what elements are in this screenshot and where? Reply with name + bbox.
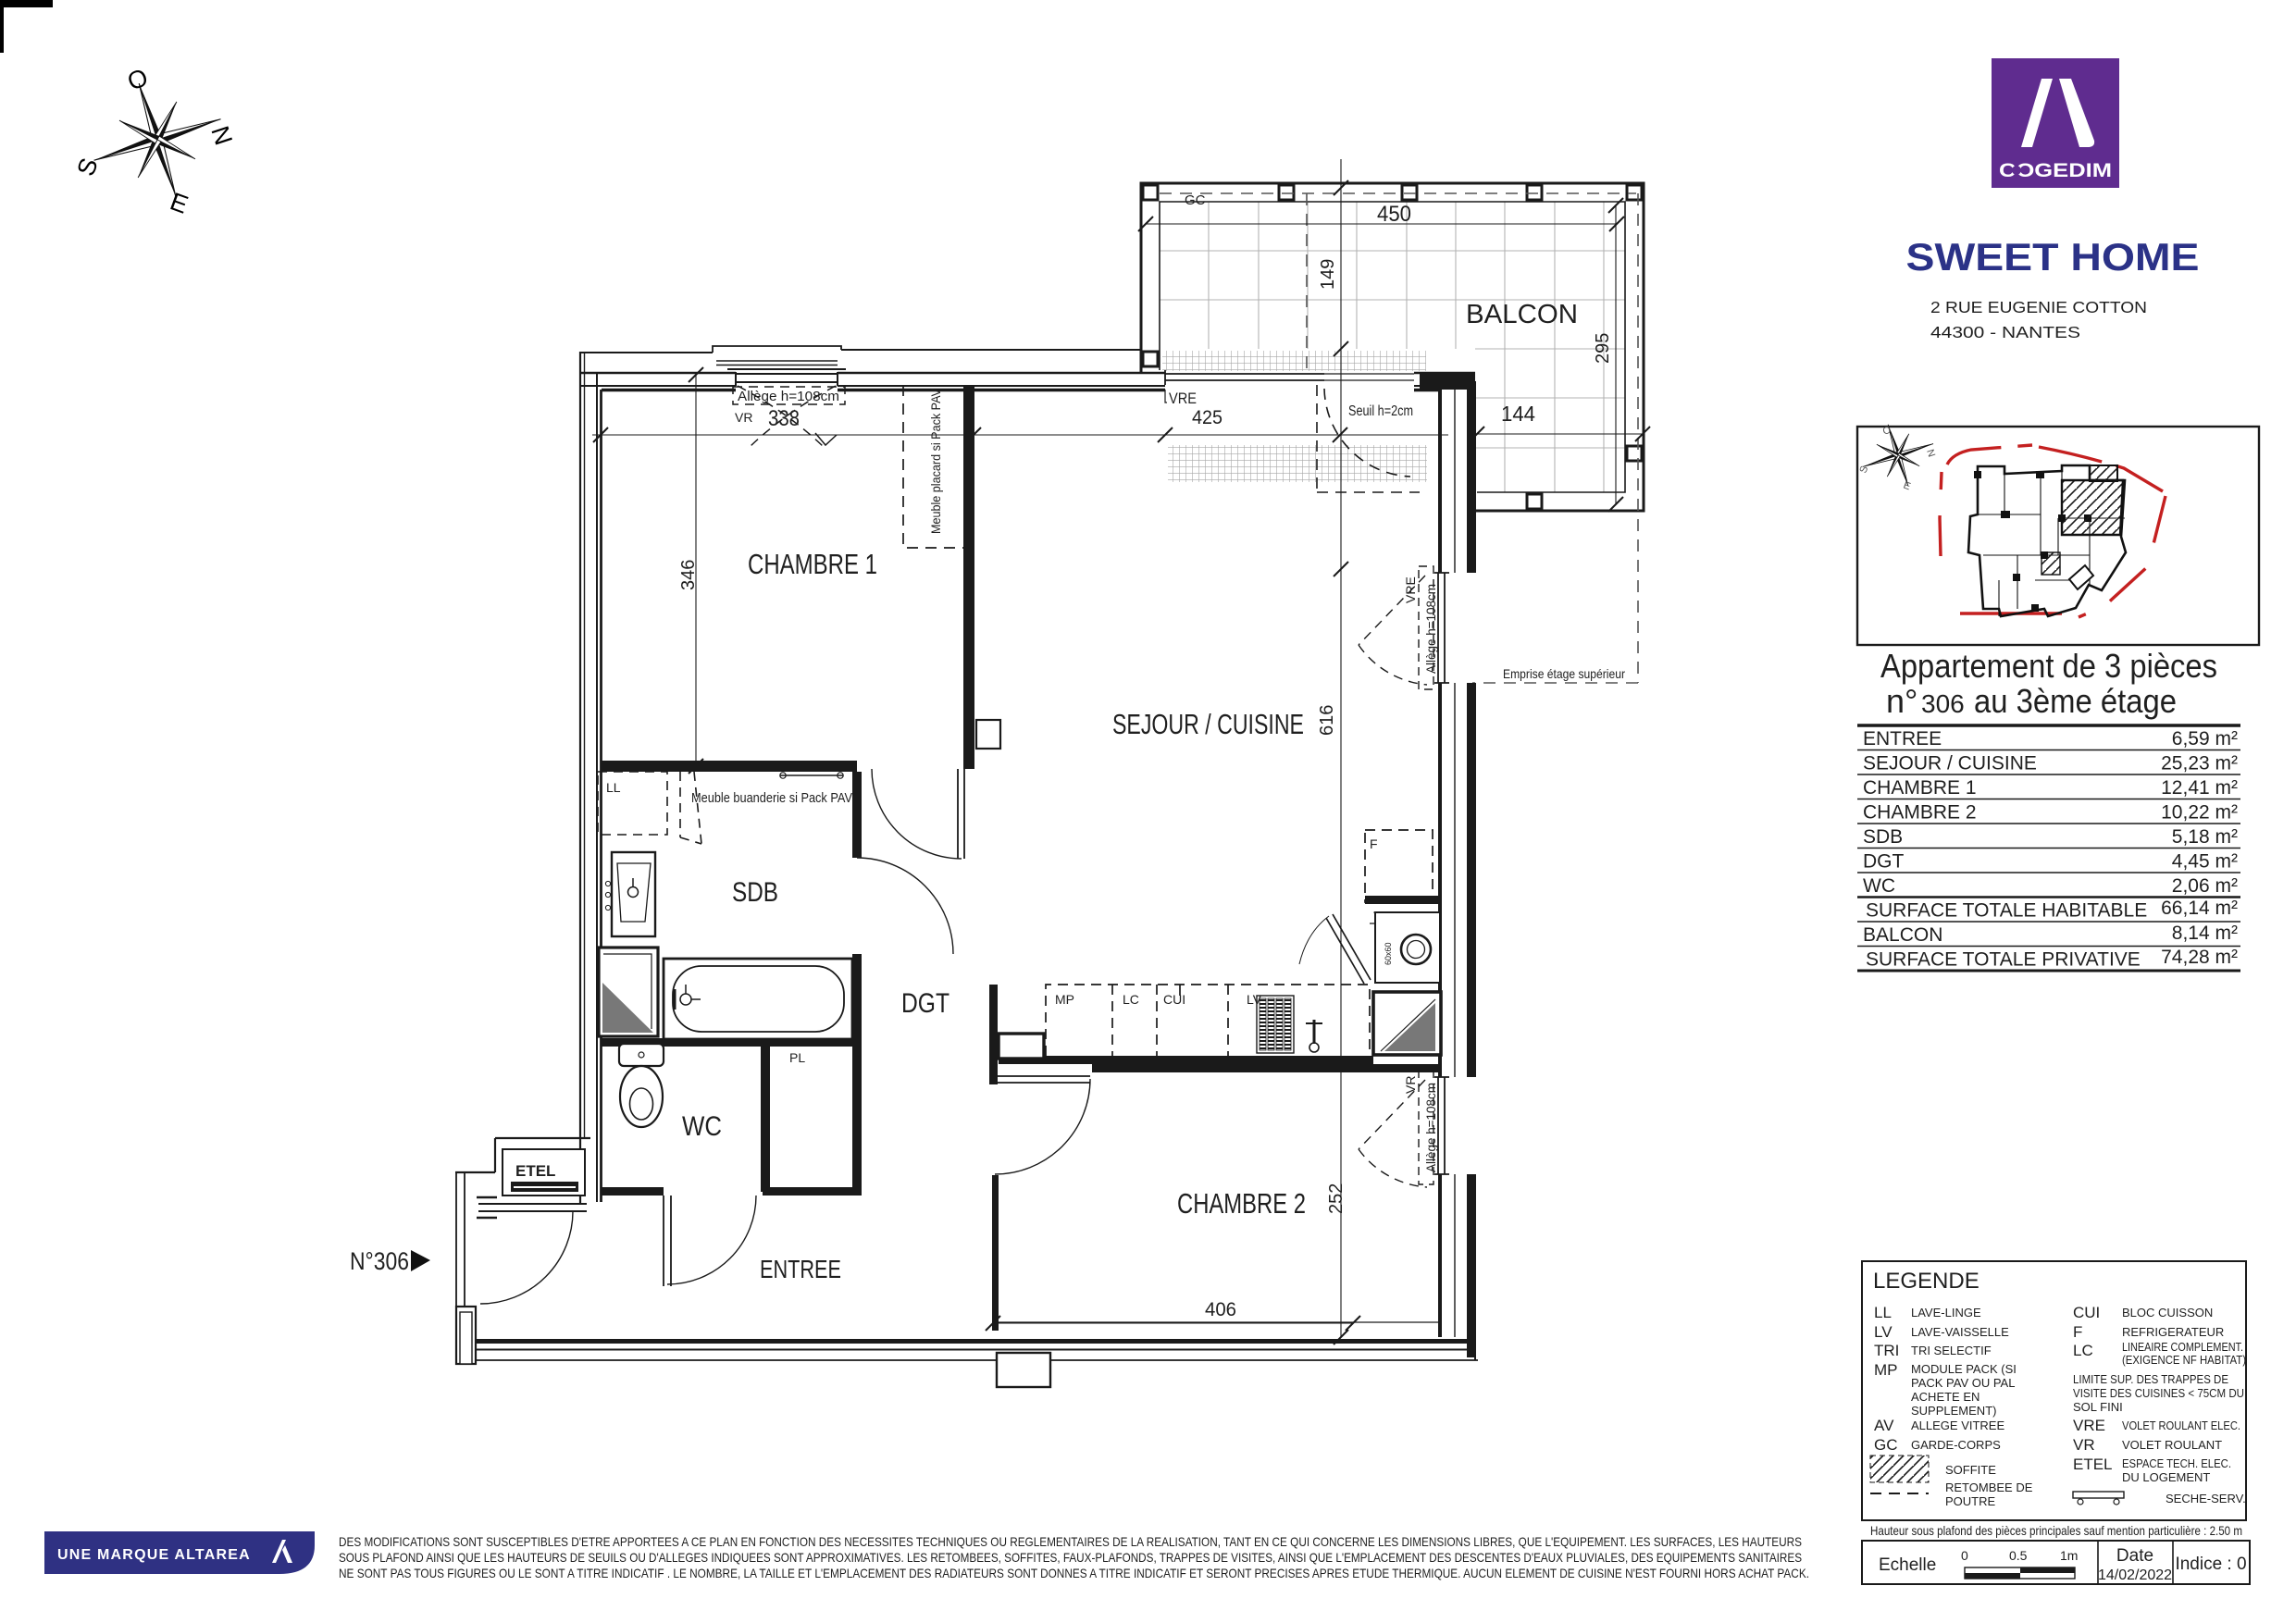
- svg-text:SOUS PLAFOND AINSI QUE LES HAU: SOUS PLAFOND AINSI QUE LES HAUTEURS DE S…: [339, 1551, 1802, 1565]
- svg-text:Emprise étage supérieur: Emprise étage supérieur: [1503, 666, 1625, 681]
- svg-text:CHAMBRE 1: CHAMBRE 1: [748, 548, 877, 580]
- svg-text:74,28 m²: 74,28 m²: [2161, 947, 2238, 968]
- svg-text:Appartement de 3 pièces: Appartement de 3 pièces: [1880, 647, 2217, 685]
- svg-text:ENTREE: ENTREE: [760, 1255, 841, 1283]
- svg-text:ENTREE: ENTREE: [1863, 728, 1942, 750]
- svg-text:Meuble placard si Pack PAV: Meuble placard si Pack PAV: [928, 388, 943, 534]
- svg-text:LC: LC: [2073, 1342, 2093, 1359]
- svg-text:616: 616: [1317, 705, 1337, 736]
- svg-text:44300 - NANTES: 44300 - NANTES: [1930, 323, 2080, 341]
- svg-text:CUI: CUI: [2073, 1304, 2100, 1321]
- svg-text:N°306: N°306: [350, 1247, 409, 1275]
- svg-text:346: 346: [678, 560, 699, 590]
- svg-text:MP: MP: [1874, 1361, 1898, 1379]
- svg-text:WC: WC: [1863, 875, 1895, 897]
- svg-text:(EXIGENCE NF HABITAT): (EXIGENCE NF HABITAT): [2122, 1353, 2246, 1367]
- svg-text:66,14 m²: 66,14 m²: [2161, 898, 2238, 919]
- svg-text:DU LOGEMENT: DU LOGEMENT: [2122, 1470, 2210, 1484]
- svg-text:2,06 m²: 2,06 m²: [2172, 875, 2238, 897]
- svg-text:DGT: DGT: [901, 988, 949, 1019]
- svg-text:DES MODIFICATIONS SONT SUSCEPT: DES MODIFICATIONS SONT SUSCEPTIBLES D'ET…: [339, 1535, 1802, 1549]
- svg-text:GC: GC: [1185, 192, 1206, 208]
- svg-text:25,23 m²: 25,23 m²: [2161, 753, 2238, 774]
- svg-text:PL: PL: [789, 1050, 805, 1065]
- svg-text:au 3ème étage: au 3ème étage: [1974, 682, 2177, 720]
- svg-text:SURFACE TOTALE HABITABLE: SURFACE TOTALE HABITABLE: [1866, 900, 2147, 922]
- svg-text:BALCON: BALCON: [1863, 924, 1942, 946]
- svg-text:CUI: CUI: [1163, 992, 1185, 1007]
- svg-text:LIMITE SUP. DES TRAPPES DE: LIMITE SUP. DES TRAPPES DE: [2073, 1372, 2228, 1386]
- svg-text:306: 306: [1921, 689, 1965, 718]
- svg-text:149: 149: [1318, 259, 1338, 290]
- svg-text:10,22 m²: 10,22 m²: [2161, 802, 2238, 824]
- svg-text:Indice : 0: Indice : 0: [2175, 1555, 2246, 1574]
- svg-text:GARDE-CORPS: GARDE-CORPS: [1911, 1438, 2001, 1452]
- svg-text:0.5: 0.5: [2009, 1548, 2028, 1563]
- svg-text:14/02/2022: 14/02/2022: [2098, 1567, 2172, 1583]
- svg-text:SOFFITE: SOFFITE: [1945, 1463, 1996, 1477]
- svg-text:Seuil h=2cm: Seuil h=2cm: [1348, 403, 1413, 419]
- svg-text:AV: AV: [1874, 1417, 1894, 1434]
- svg-text:295: 295: [1593, 333, 1613, 364]
- svg-text:F: F: [1370, 836, 1378, 851]
- svg-text:SWEET HOME: SWEET HOME: [1906, 235, 2200, 279]
- svg-text:WC: WC: [682, 1111, 722, 1142]
- svg-text:LV: LV: [1874, 1323, 1893, 1341]
- svg-text:VRE: VRE: [1169, 390, 1197, 407]
- svg-text:6,59 m²: 6,59 m²: [2172, 728, 2238, 750]
- svg-text:VR: VR: [2073, 1436, 2095, 1454]
- svg-text:SDB: SDB: [732, 877, 778, 908]
- svg-text:TRI: TRI: [1874, 1342, 1899, 1359]
- svg-text:LC: LC: [1123, 992, 1139, 1007]
- svg-text:MODULE PACK (SI: MODULE PACK (SI: [1911, 1362, 2017, 1376]
- svg-text:Date: Date: [2116, 1546, 2153, 1566]
- svg-text:CHAMBRE 2: CHAMBRE 2: [1177, 1187, 1306, 1220]
- svg-text:ACHETE EN: ACHETE EN: [1911, 1390, 1980, 1404]
- svg-text:450: 450: [1377, 202, 1411, 227]
- svg-text:Meuble buanderie si Pack PAV: Meuble buanderie si Pack PAV: [691, 791, 852, 806]
- svg-text:F: F: [2073, 1323, 2082, 1341]
- svg-text:DGT: DGT: [1863, 851, 1905, 873]
- svg-text:SEJOUR / CUISINE: SEJOUR / CUISINE: [1863, 753, 2037, 774]
- svg-text:ETEL: ETEL: [2073, 1456, 2113, 1473]
- svg-text:Allège h=108cm: Allège h=108cm: [1424, 584, 1438, 674]
- svg-text:144: 144: [1501, 402, 1535, 426]
- svg-text:406: 406: [1205, 1299, 1236, 1320]
- svg-text:VOLET ROULANT: VOLET ROULANT: [2122, 1438, 2222, 1452]
- svg-text:252: 252: [1326, 1183, 1347, 1214]
- svg-text:2 RUE EUGENIE COTTON: 2 RUE EUGENIE COTTON: [1930, 298, 2147, 316]
- svg-text:MP: MP: [1055, 992, 1074, 1007]
- svg-text:PACK PAV OU PAL: PACK PAV OU PAL: [1911, 1376, 2015, 1390]
- svg-text:Hauteur sous plafond des pièce: Hauteur sous plafond des pièces principa…: [1870, 1523, 2242, 1538]
- svg-text:VRE: VRE: [1403, 576, 1418, 603]
- svg-text:12,41 m²: 12,41 m²: [2161, 777, 2238, 799]
- svg-text:ALLEGE VITREE: ALLEGE VITREE: [1911, 1419, 2004, 1432]
- svg-text:SEJOUR / CUISINE: SEJOUR / CUISINE: [1112, 708, 1304, 740]
- svg-text:SECHE-SERV.: SECHE-SERV.: [2166, 1492, 2246, 1505]
- svg-text:VOLET ROULANT ELEC.: VOLET ROULANT ELEC.: [2122, 1419, 2240, 1432]
- svg-text:SOL FINI: SOL FINI: [2073, 1400, 2123, 1414]
- svg-text:5,18 m²: 5,18 m²: [2172, 826, 2238, 848]
- svg-text:CHAMBRE 1: CHAMBRE 1: [1863, 777, 1977, 799]
- svg-text:ESPACE TECH. ELEC.: ESPACE TECH. ELEC.: [2122, 1456, 2231, 1470]
- svg-text:8,14 m²: 8,14 m²: [2172, 923, 2238, 944]
- svg-text:POUTRE: POUTRE: [1945, 1494, 1996, 1508]
- svg-text:GC: GC: [1874, 1436, 1898, 1454]
- svg-text:LL: LL: [1874, 1304, 1892, 1321]
- svg-text:LL: LL: [606, 780, 621, 795]
- svg-text:VR: VR: [1403, 1076, 1418, 1094]
- svg-text:1m: 1m: [2060, 1548, 2078, 1563]
- svg-text:LAVE-VAISSELLE: LAVE-VAISSELLE: [1911, 1325, 2009, 1339]
- svg-text:VISITE DES CUISINES < 75CM DU: VISITE DES CUISINES < 75CM DU: [2073, 1386, 2244, 1400]
- svg-text:CHAMBRE 2: CHAMBRE 2: [1863, 802, 1977, 824]
- svg-text:NE SONT PAS TOUS FIGURES OU LE: NE SONT PAS TOUS FIGURES OU LE SONT A TI…: [339, 1567, 1809, 1580]
- svg-text:VRE: VRE: [2073, 1417, 2105, 1434]
- svg-text:REFRIGERATEUR: REFRIGERATEUR: [2122, 1325, 2224, 1339]
- svg-text:425: 425: [1192, 407, 1222, 428]
- svg-text:0: 0: [1961, 1548, 1968, 1563]
- svg-text:BALCON: BALCON: [1466, 300, 1578, 329]
- svg-text:SDB: SDB: [1863, 826, 1903, 848]
- svg-text:n°: n°: [1886, 682, 1917, 720]
- svg-text:LEGENDE: LEGENDE: [1873, 1269, 1980, 1294]
- svg-text:LINEAIRE COMPLEMENT.: LINEAIRE COMPLEMENT.: [2122, 1340, 2243, 1354]
- svg-text:TRI SELECTIF: TRI SELECTIF: [1911, 1344, 1992, 1357]
- svg-text:ETEL: ETEL: [515, 1162, 555, 1180]
- svg-text:Allège h=108cm: Allège h=108cm: [1424, 1083, 1438, 1172]
- svg-text:UNE MARQUE ALTAREA: UNE MARQUE ALTAREA: [57, 1547, 251, 1563]
- svg-text:Echelle: Echelle: [1879, 1555, 1936, 1575]
- svg-text:LAVE-LINGE: LAVE-LINGE: [1911, 1306, 1981, 1319]
- svg-text:SUPPLEMENT): SUPPLEMENT): [1911, 1404, 1996, 1418]
- svg-text:SURFACE TOTALE PRIVATIVE: SURFACE TOTALE PRIVATIVE: [1866, 949, 2141, 971]
- svg-text:RETOMBEE DE: RETOMBEE DE: [1945, 1481, 2033, 1494]
- svg-text:Allège h=108cm: Allège h=108cm: [738, 389, 839, 404]
- svg-text:VR: VR: [735, 410, 752, 425]
- svg-text:4,45 m²: 4,45 m²: [2172, 851, 2238, 873]
- svg-text:BLOC CUISSON: BLOC CUISSON: [2122, 1306, 2213, 1319]
- svg-text:338: 338: [768, 406, 800, 431]
- svg-text:60x60: 60x60: [1384, 942, 1393, 965]
